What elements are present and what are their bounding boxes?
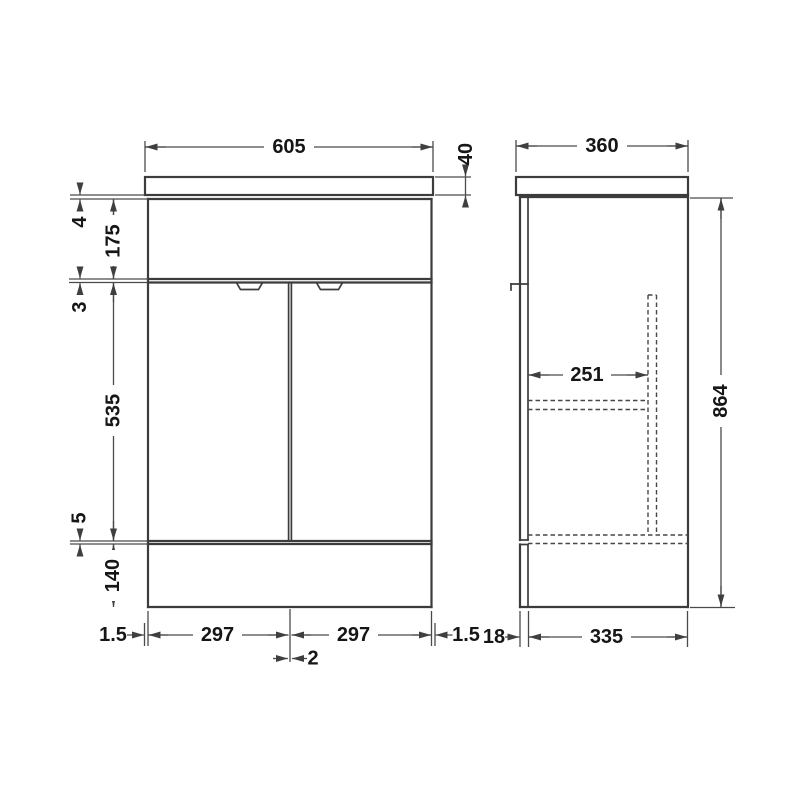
- front-right-door-handle-notch: [317, 284, 342, 290]
- side-depth-label: 360: [585, 135, 618, 157]
- front-dimension-gap-5: 5: [69, 512, 91, 556]
- front-dimension-gap-4: 4: [69, 183, 91, 228]
- right-door-width-label: 297: [337, 624, 370, 646]
- top-rail-height-label: 175: [103, 224, 125, 257]
- side-hidden-lines: [528, 295, 688, 544]
- front-left-door-handle-notch: [237, 284, 262, 290]
- front-dimension-gap-3: 3: [69, 267, 91, 313]
- door-height-label: 535: [103, 394, 125, 427]
- right-inset-label: 1.5: [452, 624, 480, 646]
- left-door-width-label: 297: [201, 624, 234, 646]
- shelf-depth-label: 251: [570, 364, 603, 386]
- side-extension-lines: [516, 140, 735, 647]
- carcass-depth-label: 335: [590, 626, 623, 648]
- plinth-height-label: 140: [102, 559, 124, 592]
- vanity-unit-dimension-drawing: 605 40 4 175 3: [0, 0, 800, 800]
- overall-height-label: 864: [710, 383, 732, 417]
- front-extension-lines: [69, 141, 471, 662]
- front-dimension-plinth-140: 140: [102, 544, 124, 607]
- front-dimension-width-605: 605: [145, 136, 433, 158]
- front-dimension-door-535: 535: [103, 283, 125, 542]
- front-dimension-center-gap-2: 2: [273, 648, 319, 670]
- side-dimension-bottom-row: 18 335: [483, 626, 688, 648]
- door-bottom-gap-label: 5: [69, 512, 91, 523]
- side-dimension-depth-360: 360: [516, 135, 688, 157]
- left-inset-label: 1.5: [99, 624, 127, 646]
- basin-gap-label: 4: [69, 216, 91, 228]
- door-top-gap-label: 3: [69, 301, 91, 312]
- door-center-gap-label: 2: [307, 648, 318, 670]
- door-thickness-label: 18: [483, 626, 505, 648]
- basin-thickness-label: 40: [455, 143, 477, 165]
- side-dimension-shelf-251: 251: [528, 364, 648, 386]
- front-view: 605 40 4 175 3: [69, 136, 480, 670]
- side-cabinet-outline: [511, 177, 688, 607]
- front-countertop: [145, 177, 433, 195]
- front-dimension-rail-175: 175: [103, 199, 125, 279]
- side-view: 360 864 251 18 335: [483, 135, 735, 648]
- front-cabinet-outline: [145, 177, 433, 607]
- front-dimension-basin-40: 40: [455, 143, 477, 207]
- side-countertop: [516, 177, 688, 195]
- technical-drawing-page: 605 40 4 175 3: [0, 0, 800, 800]
- side-dimension-height-864: 864: [710, 198, 732, 607]
- front-width-label: 605: [272, 136, 305, 158]
